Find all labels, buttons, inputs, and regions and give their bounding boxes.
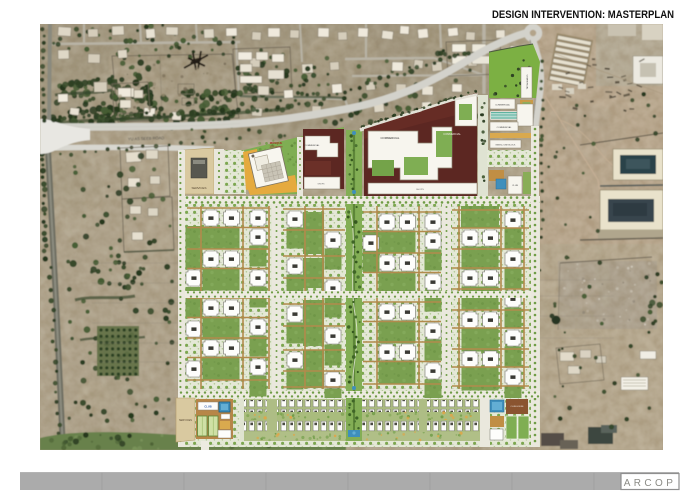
svg-text:SERVICES: SERVICES [179,418,192,422]
svg-text:SHOPS: SHOPS [416,189,424,191]
svg-text:DESIGN INTERVENTION: MASTERPLA: DESIGN INTERVENTION: MASTERPLAN [492,9,674,21]
svg-text:COMMERCIAL: COMMERCIAL [495,104,511,107]
svg-text:COMMERCIAL: COMMERCIAL [497,126,513,129]
svg-text:MOSQUE: MOSQUE [270,141,283,145]
svg-text:CLUB: CLUB [204,405,211,409]
svg-text:1500 person: 1500 person [269,146,283,149]
svg-text:CLUB HOUSE: CLUB HOUSE [510,406,524,408]
svg-text:COMMERCIAL: COMMERCIAL [526,75,529,91]
svg-text:COMMERCIAL: COMMERCIAL [305,144,321,147]
svg-text:SERVICES: SERVICES [191,186,206,190]
svg-text:SHOPS: SHOPS [317,184,325,186]
svg-text:COMMERCIAL: COMMERCIAL [443,132,461,136]
svg-text:COMMERCIAL: COMMERCIAL [381,136,400,140]
svg-text:MIXED- USE BLOCK: MIXED- USE BLOCK [496,144,516,146]
svg-text:ARCOP: ARCOP [624,478,677,489]
svg-text:CLUB: CLUB [512,185,518,187]
